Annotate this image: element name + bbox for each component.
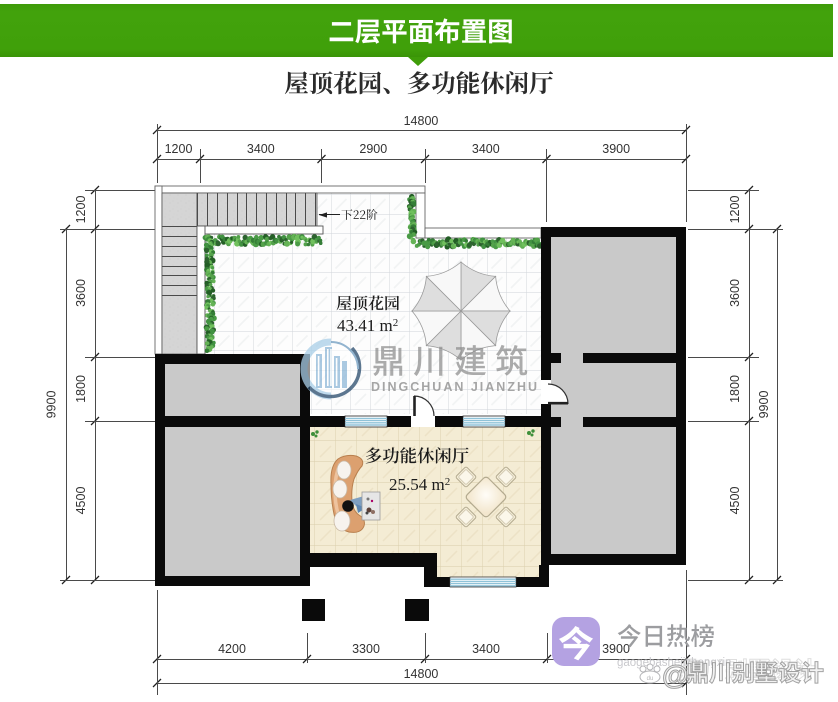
svg-text:4500: 4500: [728, 487, 742, 515]
svg-text:3600: 3600: [74, 279, 88, 307]
svg-text:2900: 2900: [359, 142, 387, 156]
svg-text:9900: 9900: [757, 391, 771, 419]
svg-text:9900: 9900: [45, 391, 59, 419]
svg-text:3600: 3600: [728, 279, 742, 307]
svg-text:du: du: [647, 676, 654, 682]
svg-text:3300: 3300: [352, 642, 380, 656]
svg-text:3400: 3400: [472, 142, 500, 156]
svg-text:DINGCHUAN JIANZHU: DINGCHUAN JIANZHU: [371, 380, 539, 394]
svg-text:3900: 3900: [602, 142, 630, 156]
svg-text:3400: 3400: [472, 642, 500, 656]
svg-text:1200: 1200: [165, 142, 193, 156]
svg-text:3900: 3900: [602, 642, 630, 656]
svg-text:14800: 14800: [404, 114, 439, 128]
svg-text:3400: 3400: [247, 142, 275, 156]
svg-text:25.54 m2: 25.54 m2: [389, 475, 450, 494]
svg-text:4500: 4500: [74, 487, 88, 515]
svg-text:@: @: [662, 660, 688, 690]
svg-text:43.41 m2: 43.41 m2: [337, 316, 398, 335]
svg-text:1800: 1800: [728, 375, 742, 403]
svg-text:14800: 14800: [404, 667, 439, 681]
svg-text:1200: 1200: [74, 196, 88, 224]
svg-text:1200: 1200: [728, 196, 742, 224]
svg-text:4200: 4200: [218, 642, 246, 656]
svg-text:1800: 1800: [74, 375, 88, 403]
